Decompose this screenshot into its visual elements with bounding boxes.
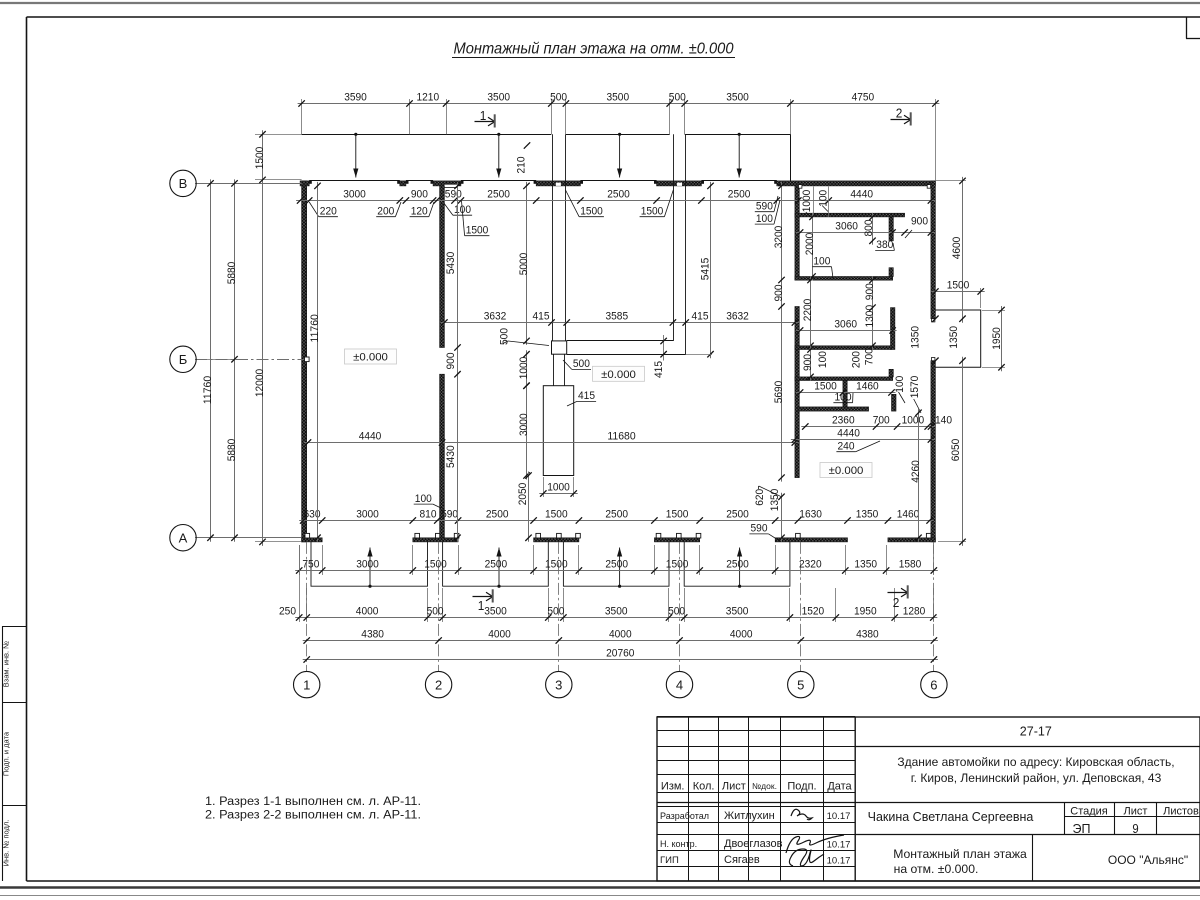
svg-text:240: 240 (838, 441, 855, 453)
svg-text:3000: 3000 (356, 559, 379, 571)
svg-text:Изм.: Изм. (661, 781, 685, 793)
svg-text:2500: 2500 (485, 559, 508, 571)
svg-text:11760: 11760 (309, 314, 321, 342)
svg-text:Двоеглазов: Двоеглазов (724, 838, 783, 850)
svg-text:10.17: 10.17 (827, 840, 851, 851)
svg-text:1630: 1630 (799, 509, 822, 521)
svg-text:9: 9 (1132, 822, 1138, 836)
svg-text:2: 2 (435, 677, 442, 692)
svg-text:1500: 1500 (814, 381, 837, 393)
svg-text:Листов: Листов (1163, 806, 1199, 818)
svg-text:4440: 4440 (359, 431, 382, 443)
svg-text:6: 6 (930, 677, 937, 692)
svg-text:100: 100 (817, 190, 829, 207)
svg-text:3500: 3500 (605, 606, 628, 618)
svg-text:100: 100 (835, 392, 852, 404)
svg-text:4000: 4000 (488, 629, 511, 641)
svg-text:5880: 5880 (226, 262, 238, 285)
svg-text:500: 500 (573, 358, 590, 370)
svg-text:Дата: Дата (827, 781, 852, 793)
svg-text:3200: 3200 (773, 226, 785, 249)
svg-text:1000: 1000 (518, 357, 530, 380)
svg-text:№док.: №док. (752, 781, 777, 791)
svg-text:5430: 5430 (445, 445, 457, 468)
svg-text:5690: 5690 (773, 381, 785, 404)
svg-text:4000: 4000 (609, 629, 632, 641)
svg-text:2: 2 (893, 595, 900, 610)
svg-text:1500: 1500 (666, 559, 689, 571)
svg-text:4440: 4440 (837, 428, 860, 440)
svg-text:±0.000: ±0.000 (353, 352, 388, 364)
svg-text:1000: 1000 (902, 415, 925, 427)
svg-text:4380: 4380 (361, 629, 384, 641)
svg-text:Стадия: Стадия (1070, 806, 1108, 818)
svg-text:2200: 2200 (802, 299, 814, 322)
svg-text:Сягаев: Сягаев (724, 854, 760, 866)
svg-text:Лист: Лист (722, 781, 746, 793)
svg-text:10.17: 10.17 (827, 856, 851, 867)
svg-text:140: 140 (935, 415, 952, 427)
svg-text:3: 3 (555, 677, 562, 692)
svg-text:Житлухин: Житлухин (724, 810, 775, 822)
svg-text:590: 590 (756, 201, 773, 213)
svg-text:±0.000: ±0.000 (601, 369, 636, 381)
svg-text:700: 700 (864, 348, 876, 365)
svg-text:900: 900 (445, 353, 457, 370)
svg-text:200: 200 (377, 206, 394, 218)
svg-text:1460: 1460 (897, 509, 920, 521)
svg-text:4260: 4260 (910, 460, 922, 483)
svg-text:1500: 1500 (666, 509, 689, 521)
svg-text:3500: 3500 (726, 92, 749, 104)
svg-text:А: А (179, 530, 188, 545)
svg-text:1950: 1950 (991, 327, 1003, 350)
svg-text:590: 590 (751, 523, 768, 535)
svg-text:120: 120 (411, 206, 428, 218)
svg-text:1300: 1300 (864, 305, 876, 328)
svg-text:900: 900 (411, 189, 428, 201)
svg-text:12000: 12000 (254, 369, 266, 397)
svg-text:2500: 2500 (726, 509, 749, 521)
svg-text:Разработал: Разработал (660, 811, 709, 821)
svg-text:3590: 3590 (344, 92, 367, 104)
svg-text:1570: 1570 (909, 376, 921, 399)
svg-text:Б: Б (179, 352, 188, 367)
svg-text:ООО "Альянс": ООО "Альянс" (1108, 853, 1188, 867)
svg-text:3060: 3060 (834, 319, 857, 331)
svg-text:4380: 4380 (856, 629, 879, 641)
svg-text:3500: 3500 (726, 606, 749, 618)
svg-text:2. Разрез 2-2 выполнен см. л.: 2. Разрез 2-2 выполнен см. л. АР-11. (205, 810, 421, 822)
svg-text:4600: 4600 (951, 237, 963, 260)
svg-text:2500: 2500 (605, 559, 628, 571)
svg-text:1350: 1350 (854, 559, 877, 571)
svg-text:415: 415 (653, 361, 665, 378)
svg-text:Н. контр.: Н. контр. (660, 839, 697, 849)
svg-text:4750: 4750 (852, 92, 875, 104)
svg-text:5: 5 (797, 677, 804, 692)
svg-text:380: 380 (876, 239, 893, 251)
svg-text:1350: 1350 (856, 509, 879, 521)
svg-text:Взам. инв. №: Взам. инв. № (1, 641, 10, 687)
svg-text:810: 810 (420, 509, 437, 521)
svg-text:500: 500 (668, 606, 685, 618)
svg-text:Монтажный план этажа: Монтажный план этажа (893, 847, 1027, 861)
svg-text:4: 4 (676, 677, 683, 692)
svg-text:Монтажный план этажа на отм. ±: Монтажный план этажа на отм. ±0.000 (454, 41, 734, 58)
svg-text:500: 500 (669, 92, 686, 104)
svg-text:900: 900 (802, 354, 814, 371)
svg-text:В: В (179, 176, 188, 191)
svg-text:2500: 2500 (607, 189, 630, 201)
svg-text:2500: 2500 (487, 189, 510, 201)
svg-text:20760: 20760 (606, 648, 634, 660)
svg-text:700: 700 (873, 415, 890, 427)
svg-text:800: 800 (863, 220, 875, 237)
svg-text:27-17: 27-17 (1020, 725, 1052, 739)
svg-text:5000: 5000 (518, 253, 530, 276)
svg-text:±0.000: ±0.000 (829, 465, 864, 477)
svg-text:590: 590 (445, 189, 462, 201)
svg-text:2360: 2360 (832, 415, 855, 427)
svg-text:11680: 11680 (607, 431, 635, 443)
svg-text:1: 1 (303, 677, 310, 692)
svg-text:3000: 3000 (518, 413, 530, 436)
svg-text:1950: 1950 (854, 606, 877, 618)
svg-text:5880: 5880 (226, 439, 238, 462)
svg-text:500: 500 (427, 606, 444, 618)
svg-text:1: 1 (480, 108, 487, 123)
svg-text:1500: 1500 (580, 206, 603, 218)
svg-text:1210: 1210 (417, 92, 440, 104)
svg-text:1350: 1350 (948, 326, 960, 349)
svg-text:1520: 1520 (802, 606, 825, 618)
svg-text:1500: 1500 (947, 280, 970, 292)
svg-text:4000: 4000 (730, 629, 753, 641)
svg-text:2500: 2500 (486, 509, 509, 521)
svg-text:ГИП: ГИП (660, 855, 679, 866)
svg-text:590: 590 (441, 509, 458, 521)
svg-text:1500: 1500 (545, 559, 568, 571)
svg-text:1280: 1280 (903, 606, 926, 618)
svg-text:2320: 2320 (799, 559, 822, 571)
svg-text:ЭП: ЭП (1073, 822, 1091, 836)
svg-text:3500: 3500 (487, 92, 510, 104)
svg-text:3500: 3500 (607, 92, 630, 104)
svg-text:1500: 1500 (424, 559, 447, 571)
svg-text:Здание автомойки по адресу: Ки: Здание автомойки по адресу: Кировская об… (897, 755, 1174, 769)
svg-text:100: 100 (894, 376, 906, 393)
svg-text:1000: 1000 (801, 190, 813, 213)
svg-text:2500: 2500 (728, 189, 751, 201)
svg-text:100: 100 (817, 351, 829, 368)
svg-text:г. Киров, Ленинский район, ул.: г. Киров, Ленинский район, ул. Деповская… (911, 771, 1162, 785)
svg-text:Чакина Светлана Сергеевна: Чакина Светлана Сергеевна (868, 810, 1034, 824)
svg-text:620: 620 (754, 489, 766, 506)
svg-text:210: 210 (515, 157, 527, 174)
svg-text:2050: 2050 (517, 483, 529, 506)
svg-text:2500: 2500 (726, 559, 749, 571)
svg-text:Инв. № подл.: Инв. № подл. (1, 820, 10, 867)
svg-text:4000: 4000 (356, 606, 379, 618)
svg-text:4440: 4440 (850, 189, 873, 201)
svg-text:1460: 1460 (856, 381, 879, 393)
svg-text:2500: 2500 (605, 509, 628, 521)
svg-text:100: 100 (415, 493, 432, 505)
svg-text:220: 220 (320, 206, 337, 218)
svg-text:900: 900 (773, 285, 785, 302)
svg-text:6050: 6050 (950, 439, 962, 462)
svg-text:2000: 2000 (804, 233, 816, 256)
svg-text:415: 415 (533, 311, 550, 323)
svg-text:10.17: 10.17 (827, 811, 851, 822)
svg-text:500: 500 (550, 92, 567, 104)
svg-text:1500: 1500 (466, 225, 489, 237)
svg-text:на отм. ±0.000.: на отм. ±0.000. (894, 862, 979, 876)
svg-text:100: 100 (813, 256, 830, 268)
svg-text:1580: 1580 (899, 559, 922, 571)
svg-text:1500: 1500 (254, 147, 266, 170)
svg-text:415: 415 (692, 311, 709, 323)
svg-text:1350: 1350 (909, 326, 921, 349)
svg-text:1500: 1500 (545, 509, 568, 521)
svg-text:2: 2 (896, 106, 903, 121)
svg-text:1. Разрез 1-1 выполнен см. л.: 1. Разрез 1-1 выполнен см. л. АР-11. (205, 796, 421, 808)
svg-text:900: 900 (911, 216, 928, 228)
svg-text:Подп. и дата: Подп. и дата (1, 731, 10, 776)
svg-text:415: 415 (578, 390, 595, 402)
svg-text:1000: 1000 (547, 482, 570, 494)
svg-text:Подп.: Подп. (787, 781, 816, 793)
svg-text:3632: 3632 (484, 311, 507, 323)
svg-text:100: 100 (756, 213, 773, 225)
svg-text:3500: 3500 (484, 606, 507, 618)
svg-text:Лист: Лист (1124, 806, 1148, 818)
svg-text:1: 1 (478, 598, 485, 613)
svg-text:3000: 3000 (343, 189, 366, 201)
svg-text:5415: 5415 (699, 258, 711, 281)
svg-text:11760: 11760 (202, 376, 214, 404)
svg-text:3632: 3632 (726, 311, 749, 323)
svg-text:900: 900 (864, 283, 876, 300)
svg-text:5430: 5430 (445, 252, 457, 275)
svg-text:Кол.: Кол. (693, 781, 715, 793)
svg-text:3585: 3585 (606, 311, 629, 323)
svg-text:1500: 1500 (641, 206, 664, 218)
svg-text:250: 250 (279, 606, 296, 618)
svg-text:3060: 3060 (835, 221, 858, 233)
svg-text:500: 500 (547, 606, 564, 618)
svg-text:750: 750 (302, 559, 319, 571)
svg-text:3000: 3000 (356, 509, 379, 521)
svg-text:200: 200 (850, 351, 862, 368)
